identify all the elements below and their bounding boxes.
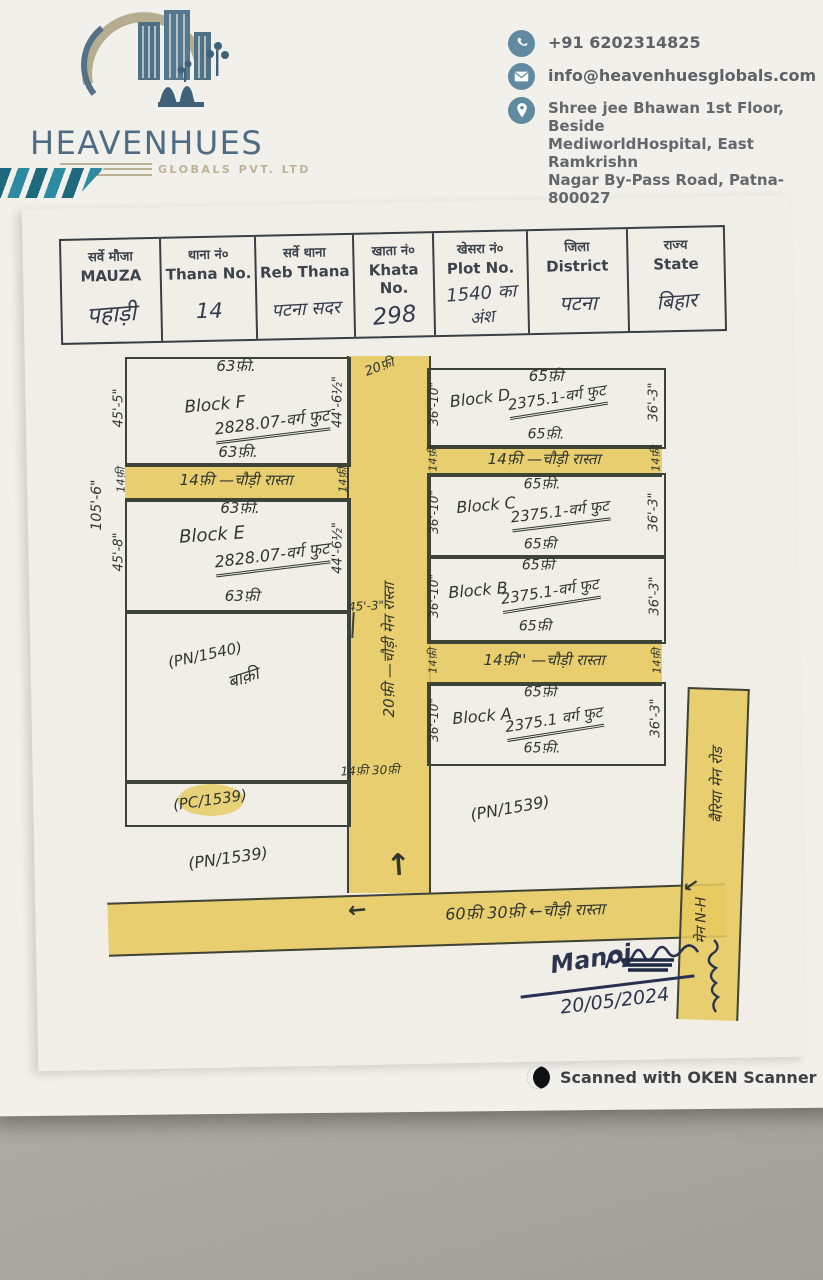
block-D-top-dim: 65फ़ी — [529, 366, 564, 386]
plot-map: 63फ़ी. Block F 2828.07-वर्ग फुट 63फ़ी. 4… — [0, 0, 823, 1280]
parcel-pn1539-right-label: (PN/1539) — [469, 792, 551, 825]
block-F-left-dim: 45'-5" — [112, 388, 127, 427]
parcel-pn1539-left-label: (PN/1539) — [187, 843, 269, 873]
block-B-right-dim: 36'-3" — [648, 576, 663, 615]
right-road-label: बैरिया मेन रोड — [707, 747, 727, 823]
scanner-credit: Scanned with OKEN Scanner — [560, 1068, 817, 1087]
block-C-bottom-dim: 65फ़ी — [524, 535, 556, 554]
cross-road-2-label: 14फ़ी —चौड़ी रास्ता — [488, 449, 601, 469]
block-B-bottom-dim: 65फ़ी — [519, 617, 551, 636]
block-B-left-dim: 36'-10" — [427, 574, 441, 618]
cross-road-3-label: 14फ़ी'' —चौड़ी रास्ता — [484, 650, 605, 670]
ink-scribble-vertical — [703, 938, 725, 1014]
block-E-left-dim: 45'-8" — [112, 532, 127, 571]
scanned-document-page: HEAVENHUES GLOBALS PVT. LTD +91 62023148… — [0, 0, 823, 1280]
cross-road-1-right-end: 14फ़ी — [336, 467, 351, 492]
block-E-right-dim: 44'-6½" — [331, 522, 346, 574]
cross-road-2-right-end: 14फ़ी — [649, 446, 664, 471]
block-F-bottom-dim: 63फ़ी. — [218, 442, 257, 462]
block-A-bottom-dim: 65फ़ी. — [524, 739, 561, 758]
block-E-bottom-dim: 63फ़ी — [225, 586, 260, 606]
junction-dims: 14फ़ी 30फ़ी — [340, 760, 400, 779]
oken-scanner-icon — [527, 1066, 550, 1089]
block-D-right-dim: 36'-3" — [647, 382, 662, 421]
block-C-top-dim: 65फ़ी. — [524, 475, 561, 494]
parcel-1540-outline — [125, 610, 351, 784]
left-arrow-icon: ← — [347, 897, 368, 924]
block-C-right-dim: 36'-3" — [647, 492, 662, 531]
block-C-left-dim: 36'-10" — [427, 490, 441, 534]
cross-road-2-left-end: 14फ़ी — [426, 446, 441, 471]
block-F-top-dim: 63फ़ी. — [216, 356, 255, 376]
block-A-left-dim: 36'-10" — [427, 698, 441, 742]
block-A-top-dim: 65फ़ी — [524, 683, 556, 702]
cross-road-3-left-end: 14फ़ी — [426, 648, 441, 673]
cross-road-1-left-end: 14फ़ी — [114, 467, 129, 492]
block-B-top-dim: 65फ़ी — [522, 556, 554, 575]
outer-left-dim: 105'-6" — [89, 480, 105, 531]
main-road-label: 20फ़ी —चौड़ी मेन रास्ता — [379, 583, 399, 718]
up-arrow-icon: ↑ — [385, 847, 413, 884]
block-D-left-dim: 36'-10" — [427, 382, 441, 426]
cross-road-1-label: 14फ़ी —चौड़ी रास्ता — [180, 470, 293, 490]
block-A-right-dim: 36'-3" — [649, 698, 664, 737]
block-D-bottom-dim: 65फ़ी. — [528, 425, 565, 444]
cross-road-3-right-end: 14फ़ी — [650, 648, 665, 673]
block-F-right-dim: 44'-6½" — [331, 376, 346, 428]
block-E-top-dim: 63फ़ी. — [220, 498, 259, 518]
